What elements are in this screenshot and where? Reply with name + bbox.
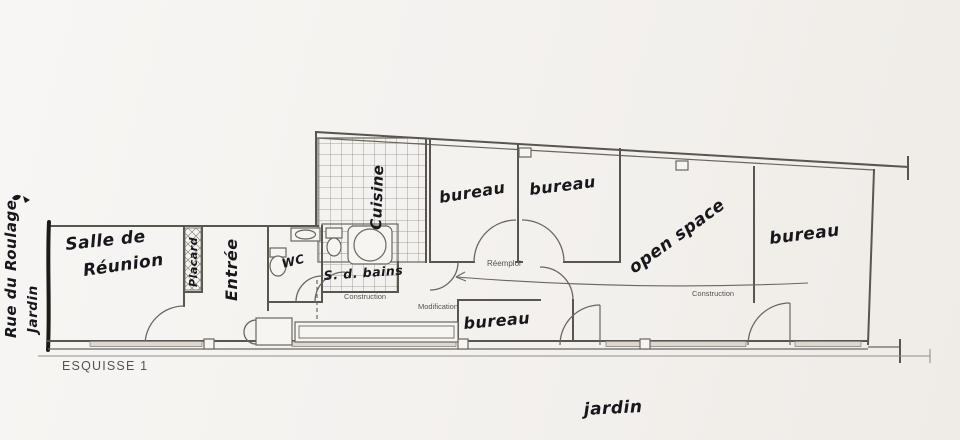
floor-plan-sketch: Salle de Réunion Placard Entrée WC Cuisi…: [0, 0, 960, 440]
office-3-label: bureau: [463, 308, 531, 333]
meeting-room-label-line1: Salle de: [64, 227, 146, 255]
construction-annotation-open-space: Construction: [692, 289, 734, 298]
meeting-room-label-line2: Réunion: [82, 250, 165, 281]
construction-annotation-center: Construction: [344, 292, 386, 301]
wall-notch: [676, 161, 688, 170]
reuse-annotation: Réemploi: [487, 259, 521, 268]
office-1-label: bureau: [438, 178, 507, 207]
sheet-title: ESQUISSE 1: [62, 359, 148, 373]
scanned-sketch-page: Salle de Réunion Placard Entrée WC Cuisi…: [0, 0, 960, 440]
wall-notch: [519, 148, 531, 157]
bath-toilet: [326, 228, 342, 238]
open-space-label: open space: [625, 195, 729, 278]
hand-drawn-street-wall: [48, 222, 49, 350]
street-name-label: Rue du Roulage: [2, 200, 20, 338]
modification-annotation: Modification: [418, 302, 458, 311]
entrance-vestibule: [256, 318, 292, 345]
reuse-arrow: [456, 272, 808, 286]
garden-side-label: Jardin: [25, 285, 41, 336]
garden-bottom-label: jardin: [580, 397, 643, 420]
facade-bench: [295, 322, 458, 342]
sidewalk-line: [38, 349, 930, 363]
office-2-label: bureau: [528, 172, 597, 199]
closet-label: Placard: [187, 237, 200, 287]
kitchen-label: Cuisine: [367, 164, 387, 230]
office-4-label: bureau: [768, 220, 841, 248]
entrance-label: Entrée: [222, 238, 241, 301]
